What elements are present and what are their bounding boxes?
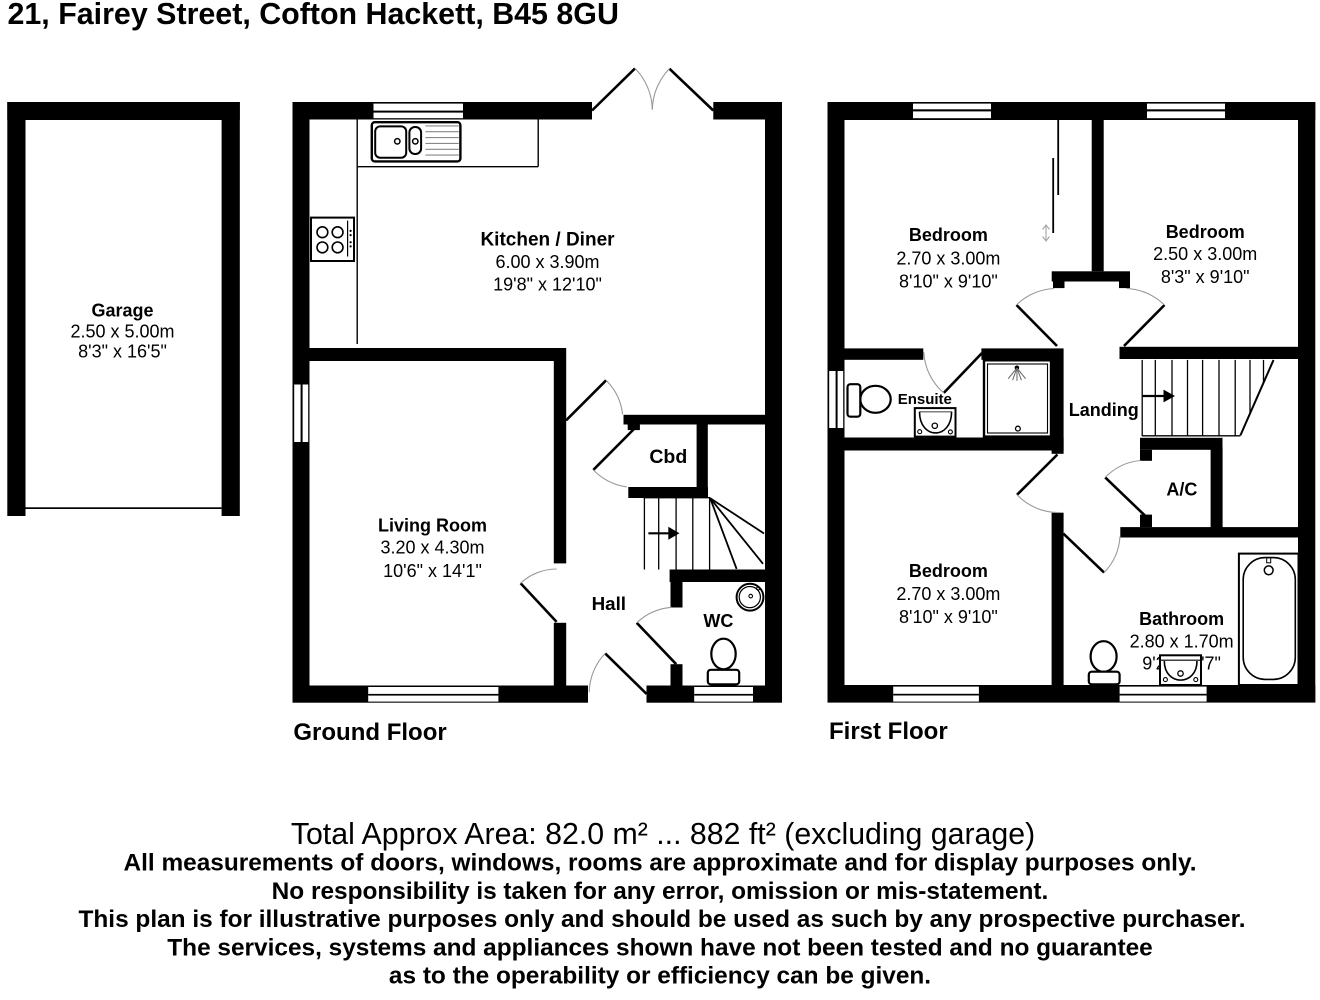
svg-text:Ensuite: Ensuite (898, 391, 952, 408)
svg-text:10'6" x 14'1": 10'6" x 14'1" (383, 561, 482, 581)
svg-text:Living Room: Living Room (378, 516, 487, 536)
svg-text:6.00 x 3.90m: 6.00 x 3.90m (495, 252, 599, 272)
svg-text:All measurements of doors, win: All measurements of doors, windows, room… (124, 850, 1197, 877)
svg-text:2.70 x 3.00m: 2.70 x 3.00m (896, 584, 1000, 604)
svg-text:2.50 x 3.00m: 2.50 x 3.00m (1153, 244, 1257, 264)
svg-text:A/C: A/C (1166, 480, 1197, 500)
svg-text:First Floor: First Floor (829, 718, 948, 745)
svg-text:Bedroom: Bedroom (909, 561, 988, 581)
svg-text:8'3" x 9'10": 8'3" x 9'10" (1161, 267, 1250, 287)
svg-text:Bathroom: Bathroom (1139, 609, 1224, 629)
svg-text:Hall: Hall (592, 593, 626, 614)
svg-text:No responsibility is taken for: No responsibility is taken for any error… (272, 878, 1049, 905)
svg-text:Ground Floor: Ground Floor (293, 719, 446, 746)
svg-text:19'8" x 12'10": 19'8" x 12'10" (493, 274, 602, 294)
svg-text:Kitchen / Diner: Kitchen / Diner (480, 230, 615, 251)
svg-text:2.50 x 5.00m: 2.50 x 5.00m (70, 321, 174, 341)
svg-text:This plan is for illustrative: This plan is for illustrative purposes o… (79, 906, 1246, 933)
svg-text:Landing: Landing (1069, 400, 1139, 420)
svg-text:21, Fairey Street, Cofton Hack: 21, Fairey Street, Cofton Hackett, B45 8… (8, 0, 619, 31)
svg-text:3.20 x 4.30m: 3.20 x 4.30m (380, 537, 484, 557)
svg-text:8'10" x 9'10": 8'10" x 9'10" (899, 271, 998, 291)
svg-text:8'10" x 9'10": 8'10" x 9'10" (899, 607, 998, 627)
svg-text:as to the operability or effic: as to the operability or efficiency can … (389, 963, 931, 990)
svg-text:2.70 x 3.00m: 2.70 x 3.00m (896, 249, 1000, 269)
svg-text:Total Approx Area: 82.0 m² ...: Total Approx Area: 82.0 m² ... 882 ft² (… (291, 818, 1035, 851)
svg-text:Bedroom: Bedroom (1166, 222, 1245, 242)
svg-text:8'3" x 16'5": 8'3" x 16'5" (78, 342, 167, 362)
svg-text:The services, systems and appl: The services, systems and appliances sho… (167, 934, 1152, 961)
svg-text:Garage: Garage (91, 301, 153, 321)
svg-text:Cbd: Cbd (649, 446, 687, 468)
svg-text:2.80 x 1.70m: 2.80 x 1.70m (1130, 631, 1234, 651)
svg-text:Bedroom: Bedroom (909, 225, 988, 245)
svg-text:WC: WC (703, 611, 733, 631)
